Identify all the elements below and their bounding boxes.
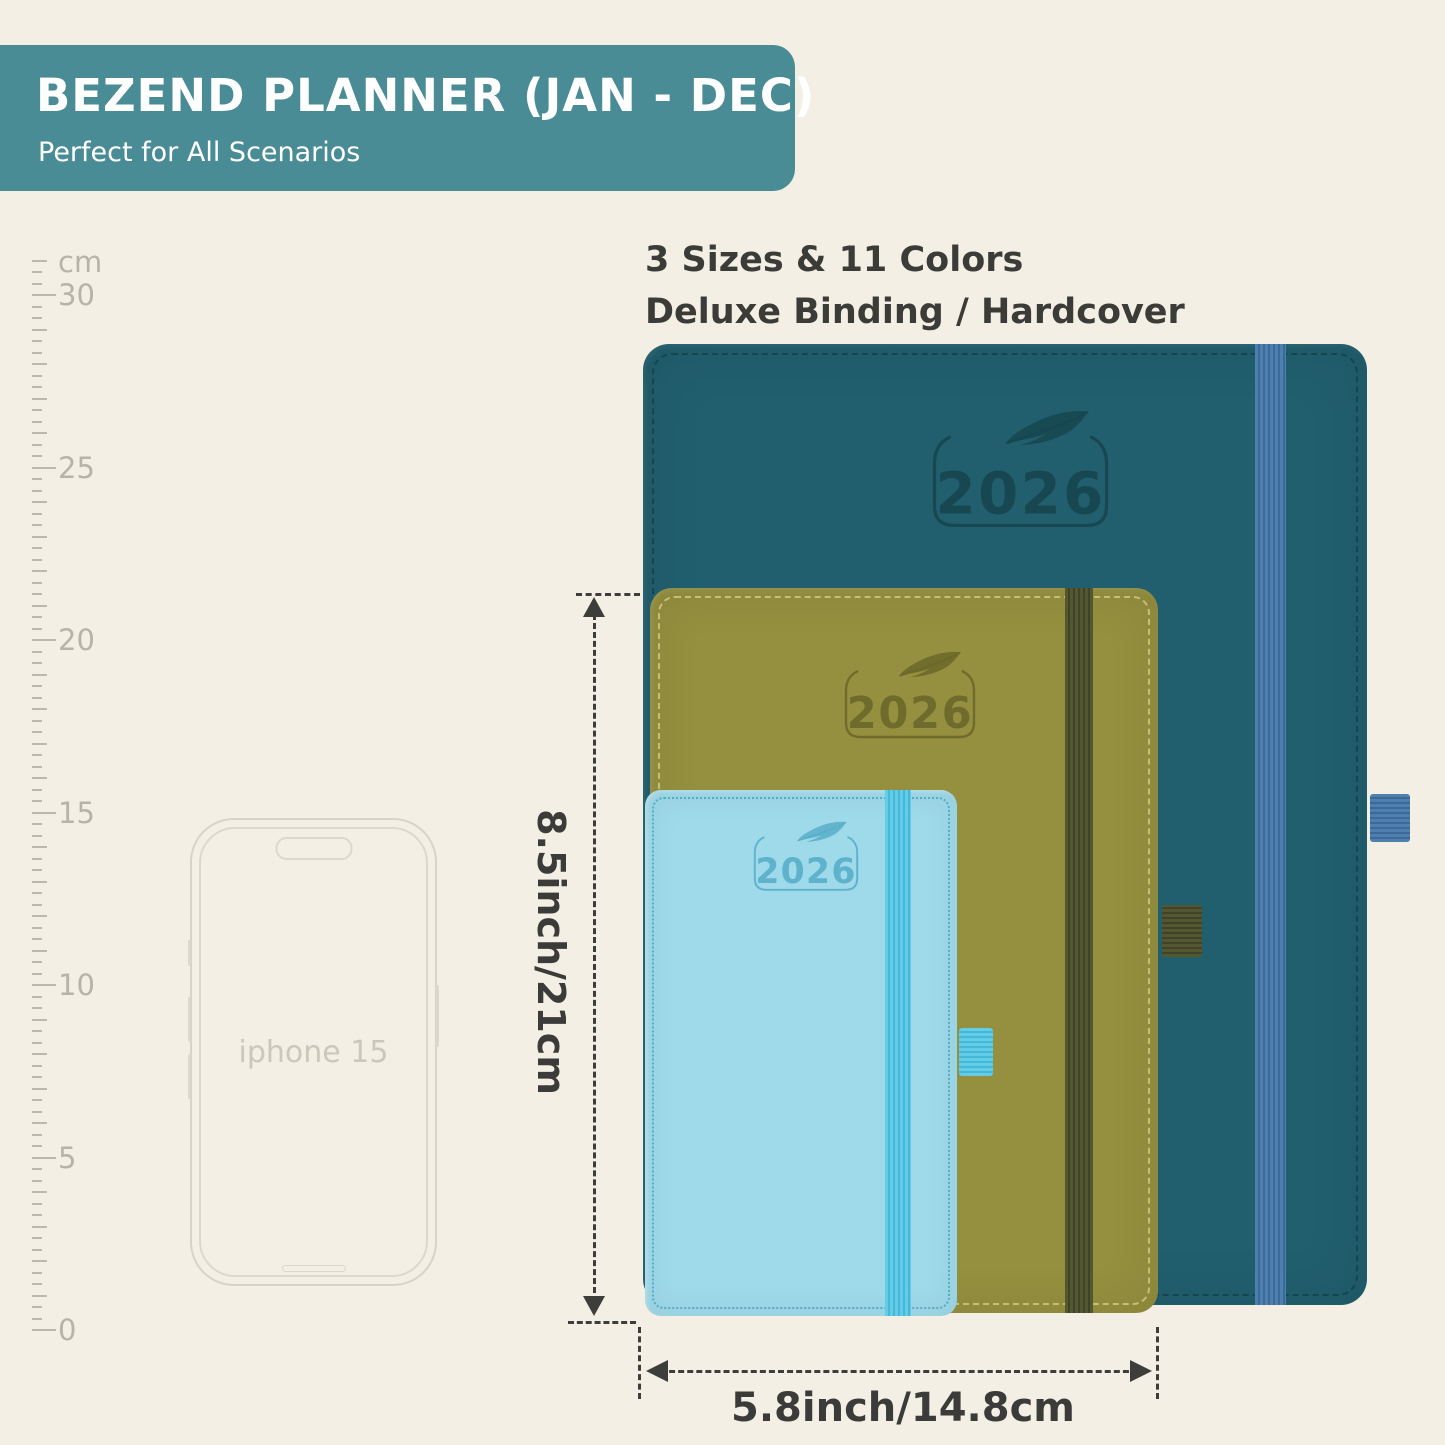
ruler-tick [32, 950, 47, 952]
ruler-tick [32, 375, 42, 377]
ruler-label: cm [58, 245, 102, 279]
ruler-tick [32, 1318, 42, 1320]
ruler-tick [32, 754, 42, 756]
planner-large-pen-loop [1370, 794, 1410, 842]
ruler-tick [32, 352, 42, 354]
planner-small: 2026 [645, 790, 957, 1316]
ruler-tick [32, 1272, 42, 1274]
width-arrow-left-icon [646, 1360, 668, 1382]
ruler-tick [32, 651, 42, 653]
height-extension-bottom [568, 1321, 636, 1324]
ruler-tick [32, 766, 42, 768]
iphone-bottom-slot [282, 1265, 346, 1272]
width-dimension-line [660, 1370, 1138, 1373]
ruler-tick [32, 823, 42, 825]
ruler-tick [32, 398, 47, 400]
feather-icon [900, 652, 960, 677]
ruler-tick [32, 927, 42, 929]
ruler-tick [32, 777, 47, 779]
planner-large-year: 2026 [935, 460, 1105, 528]
planner-small-embossed-logo: 2026 [742, 816, 870, 906]
feather-icon [1007, 411, 1088, 445]
ruler-tick [32, 1157, 56, 1159]
binding-text: Deluxe Binding / Hardcover [645, 292, 1185, 332]
ruler-tick [32, 1237, 42, 1239]
ruler: 302520151050cm [0, 0, 160, 1445]
ruler-tick [32, 1329, 56, 1331]
ruler-label: 15 [58, 796, 95, 830]
ruler-tick [32, 708, 47, 710]
width-extension-left [638, 1327, 641, 1399]
ruler-tick [32, 1214, 42, 1216]
ruler-tick [32, 432, 47, 434]
ruler-tick [32, 478, 42, 480]
ruler-tick [32, 915, 47, 917]
ruler-tick [32, 616, 42, 618]
ruler-tick [32, 1134, 42, 1136]
height-dimension-line [593, 614, 596, 1302]
ruler-tick [32, 800, 42, 802]
ruler-tick [32, 467, 56, 469]
ruler-tick [32, 271, 42, 273]
ruler-label: 0 [58, 1313, 76, 1347]
feather-icon [798, 822, 846, 842]
sizes-colors-text: 3 Sizes & 11 Colors [645, 240, 1023, 280]
planner-small-year: 2026 [755, 852, 856, 892]
product-image: BEZEND PLANNER (JAN - DEC) Perfect for A… [0, 0, 1445, 1445]
ruler-tick [32, 340, 42, 342]
ruler-label: 20 [58, 623, 95, 657]
ruler-tick [32, 984, 56, 986]
iphone-power-button [436, 985, 439, 1047]
planner-small-pen-loop [959, 1028, 993, 1076]
ruler-tick [32, 720, 42, 722]
planner-medium-year: 2026 [847, 689, 974, 739]
ruler-tick [32, 490, 42, 492]
height-extension-top [576, 593, 640, 596]
ruler-tick [32, 1042, 42, 1044]
ruler-tick [32, 938, 42, 940]
planner-large-embossed-logo: 2026 [913, 402, 1128, 552]
ruler-tick [32, 524, 42, 526]
ruler-tick [32, 1019, 47, 1021]
iphone-mute-switch [188, 940, 191, 966]
ruler-tick [32, 363, 47, 365]
ruler-label: 10 [58, 968, 95, 1002]
ruler-tick [32, 1180, 42, 1182]
iphone-volume-up-button [188, 997, 191, 1042]
ruler-tick [32, 260, 47, 262]
ruler-tick [32, 812, 56, 814]
ruler-tick [32, 582, 42, 584]
ruler-tick [32, 662, 42, 664]
ruler-tick [32, 1226, 47, 1228]
ruler-tick [32, 306, 42, 308]
ruler-tick [32, 294, 56, 296]
ruler-tick [32, 1203, 42, 1205]
ruler-tick [32, 605, 47, 607]
ruler-label: 30 [58, 278, 95, 312]
planner-small-elastic-band [885, 790, 911, 1316]
ruler-tick [32, 1249, 42, 1251]
ruler-tick [32, 674, 47, 676]
ruler-tick [32, 513, 42, 515]
ruler-label: 5 [58, 1141, 76, 1175]
ruler-tick [32, 697, 42, 699]
ruler-tick [32, 1065, 42, 1067]
ruler-tick [32, 1030, 42, 1032]
ruler-tick [32, 961, 42, 963]
ruler-tick [32, 409, 42, 411]
iphone-outline: iphone 15 [190, 818, 437, 1286]
height-arrow-down-icon [583, 1296, 605, 1316]
ruler-tick [32, 881, 47, 883]
ruler-tick [32, 628, 42, 630]
ruler-tick [32, 743, 47, 745]
iphone-dynamic-island [275, 837, 352, 860]
ruler-tick [32, 789, 42, 791]
ruler-tick [32, 1191, 47, 1193]
iphone-volume-down-button [188, 1054, 191, 1099]
ruler-tick [32, 283, 42, 285]
ruler-tick [32, 455, 42, 457]
width-dimension-label: 5.8inch/14.8cm [648, 1385, 1158, 1431]
ruler-tick [32, 421, 42, 423]
ruler-tick [32, 501, 47, 503]
ruler-tick [32, 1053, 47, 1055]
ruler-tick [32, 1306, 42, 1308]
ruler-tick [32, 547, 42, 549]
ruler-tick [32, 1088, 47, 1090]
ruler-tick [32, 869, 42, 871]
planner-medium-pen-loop [1162, 905, 1202, 957]
ruler-tick [32, 1007, 42, 1009]
planner-medium-embossed-logo: 2026 [830, 645, 990, 757]
iphone-label: iphone 15 [192, 1035, 435, 1070]
height-arrow-up-icon [583, 597, 605, 617]
width-arrow-right-icon [1130, 1360, 1152, 1382]
ruler-tick [32, 1122, 47, 1124]
ruler-tick [32, 639, 56, 641]
ruler-tick [32, 1145, 42, 1147]
ruler-tick [32, 996, 42, 998]
ruler-tick [32, 1076, 42, 1078]
planner-large-elastic-band [1255, 344, 1286, 1305]
ruler-tick [32, 444, 42, 446]
ruler-tick [32, 846, 47, 848]
planner-medium-elastic-band [1065, 588, 1093, 1313]
ruler-tick [32, 858, 42, 860]
ruler-tick [32, 1168, 42, 1170]
ruler-tick [32, 892, 42, 894]
ruler-tick [32, 973, 42, 975]
ruler-tick [32, 386, 42, 388]
ruler-label: 25 [58, 451, 95, 485]
height-dimension-label: 8.5inch/21cm [529, 747, 573, 1157]
ruler-tick [32, 1260, 47, 1262]
ruler-tick [32, 570, 47, 572]
ruler-tick [32, 593, 42, 595]
ruler-tick [32, 835, 42, 837]
ruler-tick [32, 685, 42, 687]
ruler-tick [32, 536, 47, 538]
ruler-tick [32, 731, 42, 733]
ruler-tick [32, 904, 42, 906]
ruler-tick [32, 317, 42, 319]
ruler-tick [32, 1099, 42, 1101]
ruler-tick [32, 329, 47, 331]
ruler-tick [32, 559, 42, 561]
ruler-tick [32, 1283, 42, 1285]
ruler-tick [32, 1295, 47, 1297]
ruler-tick [32, 1111, 42, 1113]
